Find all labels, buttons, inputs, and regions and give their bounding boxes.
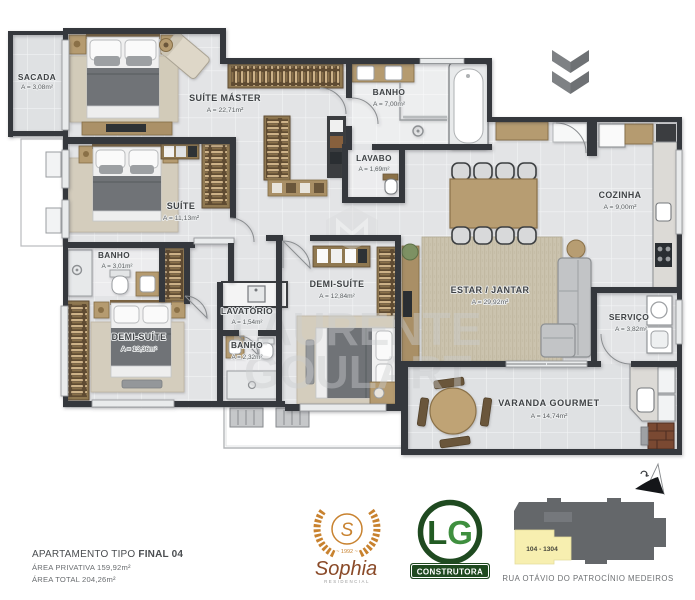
svg-text:DEMI-SUÍTE: DEMI-SUÍTE xyxy=(310,279,365,289)
svg-text:S: S xyxy=(341,520,354,541)
svg-text:APARTAMENTO TIPO FINAL 04: APARTAMENTO TIPO FINAL 04 xyxy=(32,549,183,560)
svg-text:ESTAR / JANTAR: ESTAR / JANTAR xyxy=(451,285,530,295)
svg-text:RESIDENCIAL: RESIDENCIAL xyxy=(324,579,370,584)
svg-text:A = 3,08m²: A = 3,08m² xyxy=(21,84,54,91)
svg-text:A = 11,13m²: A = 11,13m² xyxy=(163,215,200,222)
svg-text:104 - 1304: 104 - 1304 xyxy=(526,546,558,553)
svg-text:BANHO: BANHO xyxy=(373,87,406,97)
svg-text:Sophia: Sophia xyxy=(315,558,377,580)
svg-text:A = 1,69m²: A = 1,69m² xyxy=(358,166,389,173)
svg-text:~ 1992 ~: ~ 1992 ~ xyxy=(336,549,358,555)
svg-text:A = 3,82m²: A = 3,82m² xyxy=(615,326,648,333)
svg-text:BANHO: BANHO xyxy=(98,251,130,260)
svg-text:ÁREA TOTAL 204,26m²: ÁREA TOTAL 204,26m² xyxy=(32,575,116,584)
svg-text:A = 3,01m²: A = 3,01m² xyxy=(101,263,132,270)
svg-text:LAVATÓRIO: LAVATÓRIO xyxy=(221,305,273,316)
svg-text:A = 2,32m²: A = 2,32m² xyxy=(231,354,262,361)
svg-text:ÁREA PRIVATIVA 159,92m²: ÁREA PRIVATIVA 159,92m² xyxy=(32,563,131,572)
svg-text:A = 9,00m²: A = 9,00m² xyxy=(603,204,637,211)
svg-text:CONSTRUTORA: CONSTRUTORA xyxy=(417,568,483,577)
svg-text:LAVABO: LAVABO xyxy=(356,154,392,163)
svg-text:A = 29,92m²: A = 29,92m² xyxy=(472,299,510,306)
svg-text:RUA OTÁVIO DO PATROCÍNIO MEDEI: RUA OTÁVIO DO PATROCÍNIO MEDEIROS xyxy=(502,574,673,583)
svg-text:VARANDA GOURMET: VARANDA GOURMET xyxy=(498,398,600,408)
svg-text:A = 14,74m²: A = 14,74m² xyxy=(531,413,569,420)
svg-text:COZINHA: COZINHA xyxy=(599,190,642,200)
svg-text:DEMI-SUÍTE: DEMI-SUÍTE xyxy=(112,332,167,342)
svg-text:SUÍTE: SUÍTE xyxy=(167,201,196,211)
svg-text:LG: LG xyxy=(427,514,473,551)
svg-text:SERVIÇO: SERVIÇO xyxy=(609,312,649,322)
svg-text:SACADA: SACADA xyxy=(18,72,56,82)
svg-text:A = 22,71m²: A = 22,71m² xyxy=(207,107,245,114)
svg-text:A = 13,36m²: A = 13,36m² xyxy=(121,346,158,353)
svg-text:SUÍTE MÁSTER: SUÍTE MÁSTER xyxy=(189,93,261,103)
svg-text:A = 7,00m²: A = 7,00m² xyxy=(373,101,406,108)
svg-text:A = 12,84m²: A = 12,84m² xyxy=(319,293,356,300)
svg-text:A = 1,54m²: A = 1,54m² xyxy=(231,319,262,326)
svg-text:BANHO: BANHO xyxy=(231,341,263,350)
